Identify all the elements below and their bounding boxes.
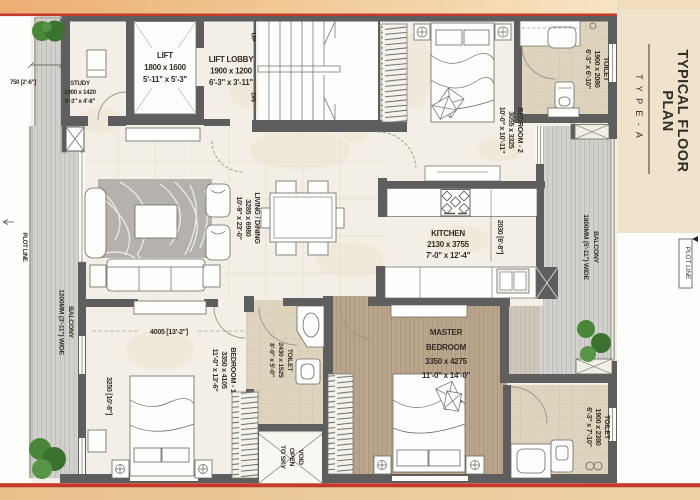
svg-text:TO SKY: TO SKY [279,445,286,469]
svg-text:1800 x 1600: 1800 x 1600 [144,63,187,72]
svg-text:1900 x 2380: 1900 x 2380 [594,408,603,445]
svg-text:7'-0" x 12'-4": 7'-0" x 12'-4" [426,251,471,260]
svg-text:TOILET: TOILET [603,415,612,440]
svg-text:1900 x 1420: 1900 x 1420 [64,89,96,96]
svg-text:DN: DN [250,92,257,102]
svg-text:750 [2'-6"]: 750 [2'-6"] [10,80,36,86]
svg-text:TYPICAL FLOOR: TYPICAL FLOOR [674,49,690,172]
svg-text:10'-0" x 10'-11": 10'-0" x 10'-11" [498,107,507,154]
svg-text:3055 x 3325: 3055 x 3325 [507,111,516,148]
svg-text:1900 x 1200: 1900 x 1200 [210,67,253,76]
svg-text:LIFT LOBBY: LIFT LOBBY [209,55,255,64]
svg-text:TOILET: TOILET [602,57,611,82]
svg-text:11'-0" x 13'-6": 11'-0" x 13'-6" [211,349,220,392]
svg-text:3350 x 4275: 3350 x 4275 [425,357,468,366]
svg-text:3285 x 6980: 3285 x 6980 [244,199,253,236]
svg-text:BEDROOM: BEDROOM [426,343,467,352]
svg-text:STUDY: STUDY [70,80,91,87]
svg-text:8'-0" x 5'-0": 8'-0" x 5'-0" [268,343,275,377]
svg-text:PLOT LINE: PLOT LINE [21,232,27,261]
svg-text:BALCONY: BALCONY [67,306,74,339]
svg-text:1200MM (3'-11") WIDE: 1200MM (3'-11") WIDE [58,289,65,355]
svg-text:2030 [6'-8"]: 2030 [6'-8"] [496,220,503,254]
svg-text:3250 [10'-8"]: 3250 [10'-8"] [105,377,112,415]
svg-text:TOILET: TOILET [286,349,293,373]
svg-text:2430 x 1525: 2430 x 1525 [277,342,284,378]
svg-text:KITCHEN: KITCHEN [431,229,465,238]
svg-text:BEDROOM - 2: BEDROOM - 2 [516,107,525,152]
svg-text:11'-0" x 14'-0": 11'-0" x 14'-0" [422,371,471,380]
svg-text:10'-9" x 23'-0": 10'-9" x 23'-0" [235,196,244,239]
svg-text:VOID: VOID [297,449,304,465]
svg-text:LIFT: LIFT [157,51,173,60]
svg-text:6'-3" x 3'-11": 6'-3" x 3'-11" [209,78,253,87]
svg-text:PLOT LINE: PLOT LINE [684,247,691,280]
svg-text:1900 x 2080: 1900 x 2080 [593,50,602,87]
svg-text:6'-3" x 4'-8": 6'-3" x 4'-8" [65,98,96,105]
svg-text:LIVING / DINING: LIVING / DINING [253,192,262,244]
svg-text:PLAN: PLAN [659,90,675,131]
svg-text:BEDROOM - 1: BEDROOM - 1 [229,347,238,392]
svg-text:6'-3" x 6'-10": 6'-3" x 6'-10" [584,49,593,89]
svg-text:5'-11" x 5'-3": 5'-11" x 5'-3" [143,75,187,84]
svg-text:2130 x 3755: 2130 x 3755 [427,240,470,249]
svg-text:3350 x 4105: 3350 x 4105 [220,351,229,388]
svg-text:T Y P E - A: T Y P E - A [634,74,644,140]
svg-text:1800MM (5'-11") WIDE: 1800MM (5'-11") WIDE [582,214,589,280]
svg-text:4005 [13'-2"]: 4005 [13'-2"] [150,329,188,336]
svg-text:UP: UP [250,33,257,43]
svg-text:MASTER: MASTER [430,328,463,337]
svg-text:6'-3" x 7'-10": 6'-3" x 7'-10" [585,407,594,447]
svg-text:BALCONY: BALCONY [592,231,599,264]
svg-text:OPEN: OPEN [288,448,295,467]
